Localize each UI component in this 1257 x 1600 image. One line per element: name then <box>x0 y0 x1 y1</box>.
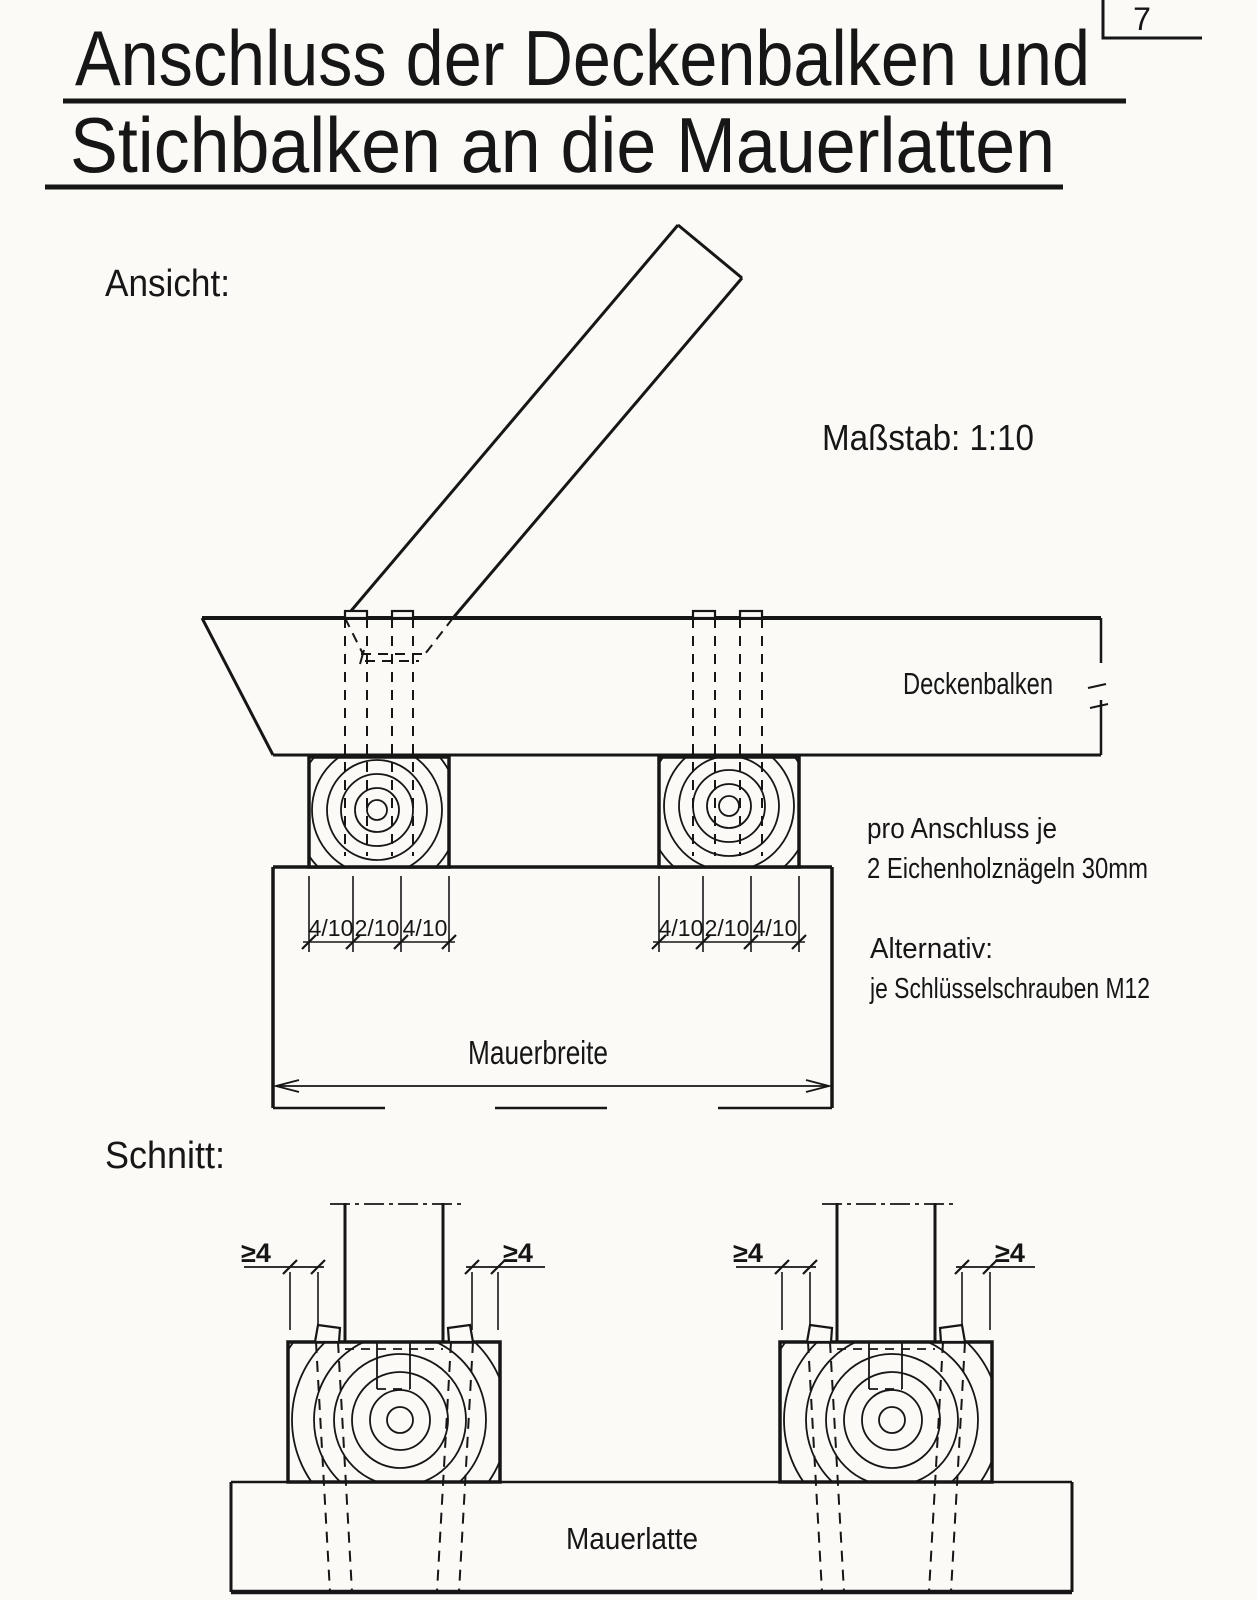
technical-drawing: Anschluss der Deckenbalken und Stichbalk… <box>0 0 1257 1600</box>
wall-outline <box>273 867 832 1108</box>
dim-value: 2/10 <box>705 915 750 941</box>
edge-distance-dim-left: ≥4 <box>733 1238 817 1330</box>
note-line-3: Alternativ: <box>870 933 993 965</box>
edge-distance-label: ≥4 <box>995 1238 1025 1268</box>
title-block: Anschluss der Deckenbalken und Stichbalk… <box>45 14 1126 189</box>
note-line-4: je Schlüsselschrauben M12 <box>869 973 1150 1005</box>
schnitt-view: Schnitt: ≥4 <box>105 1135 1072 1592</box>
edge-distance-dim-left: ≥4 <box>241 1238 325 1330</box>
wall-width-dimension: Mauerbreite <box>276 1034 829 1092</box>
dimension-chain-right: 4/10 2/10 4/10 <box>652 876 806 952</box>
edge-distance-dim-right: ≥4 <box>955 1238 1035 1330</box>
mauerlatte-section-left <box>259 692 495 928</box>
ansicht-view-label: Ansicht: <box>105 263 230 305</box>
nail-head <box>807 1325 832 1342</box>
drawing-sheet: Anschluss der Deckenbalken und Stichbalk… <box>0 0 1257 1600</box>
scale-note: Maßstab: 1:10 <box>822 417 1034 458</box>
dimension-chain-left: 4/10 2/10 4/10 <box>302 876 456 952</box>
stichbalken-outline <box>345 225 742 618</box>
mauerlatte-section-right <box>611 688 847 924</box>
note-line-2: 2 Eichenholznägeln 30mm <box>867 853 1148 885</box>
page-number: 7 <box>1133 1 1151 37</box>
schnitt-view-label: Schnitt: <box>105 1135 225 1177</box>
page-corner-border <box>1103 0 1202 38</box>
nail-head <box>345 611 367 618</box>
ansicht-view: Ansicht: Maßstab: 1:10 Deckenbalken <box>105 225 1150 1108</box>
edge-distance-label: ≥4 <box>733 1238 763 1268</box>
wall-width-label: Mauerbreite <box>468 1034 608 1071</box>
deckenbalken-label: Deckenbalken <box>903 666 1053 701</box>
fastener-notes: pro Anschluss je 2 Eichenholznägeln 30mm… <box>867 813 1150 1005</box>
dim-value: 4/10 <box>753 915 798 941</box>
beam-break-mark <box>1090 704 1108 708</box>
dim-value: 2/10 <box>355 915 400 941</box>
edge-distance-label: ≥4 <box>503 1238 533 1268</box>
dim-value: 4/10 <box>403 915 448 941</box>
dim-value: 4/10 <box>309 915 354 941</box>
dim-value: 4/10 <box>659 915 704 941</box>
page-title-line2: Stichbalken an die Mauerlatten <box>70 101 1055 189</box>
mauerlatte-label: Mauerlatte <box>566 1521 698 1556</box>
nail-head <box>315 1325 340 1342</box>
edge-distance-label: ≥4 <box>241 1238 271 1268</box>
page-number-box: 7 <box>1103 0 1202 38</box>
nail-head <box>392 611 413 618</box>
nail-head <box>740 611 762 618</box>
beam-break-mark <box>1088 684 1106 688</box>
stichbalken-hidden-notch <box>345 618 453 664</box>
nail-head <box>693 611 715 618</box>
nail-head <box>940 1325 965 1342</box>
page-title-line1: Anschluss der Deckenbalken und <box>75 14 1090 102</box>
note-line-1: pro Anschluss je <box>867 813 1057 845</box>
nail-head <box>448 1325 473 1342</box>
edge-distance-dim-right: ≥4 <box>465 1238 545 1330</box>
